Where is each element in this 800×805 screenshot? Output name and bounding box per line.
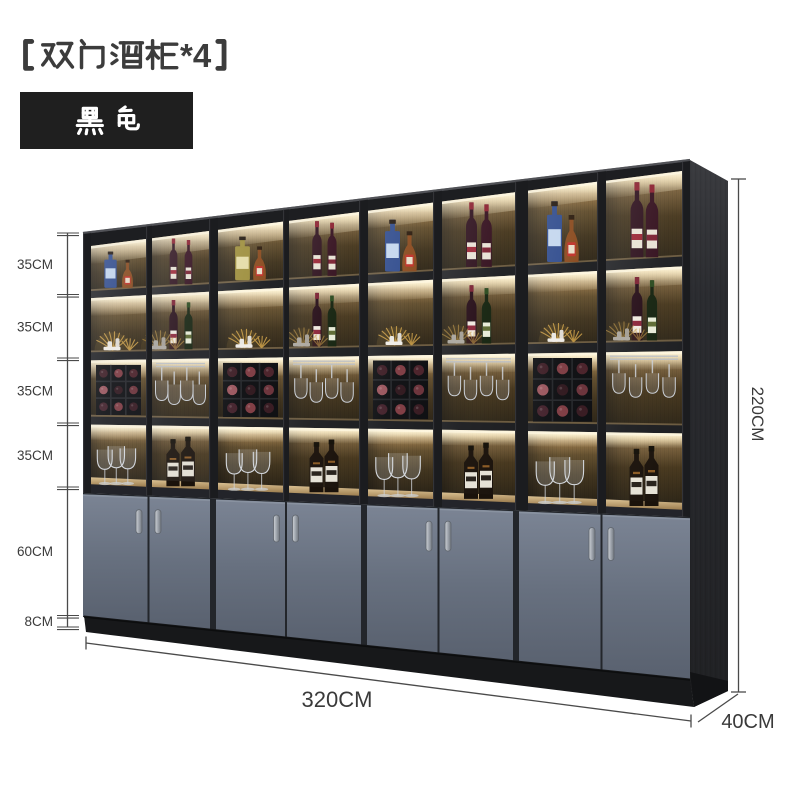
svg-text:220CM: 220CM bbox=[748, 387, 767, 442]
svg-text:35CM: 35CM bbox=[17, 257, 53, 272]
svg-text:8CM: 8CM bbox=[24, 614, 53, 629]
svg-text:35CM: 35CM bbox=[17, 448, 53, 463]
svg-text:*4: *4 bbox=[180, 37, 212, 74]
svg-text:60CM: 60CM bbox=[17, 544, 53, 559]
svg-text:40CM: 40CM bbox=[721, 711, 774, 733]
svg-text:35CM: 35CM bbox=[17, 319, 53, 334]
svg-text:35CM: 35CM bbox=[17, 384, 53, 399]
svg-text:320CM: 320CM bbox=[302, 687, 373, 712]
